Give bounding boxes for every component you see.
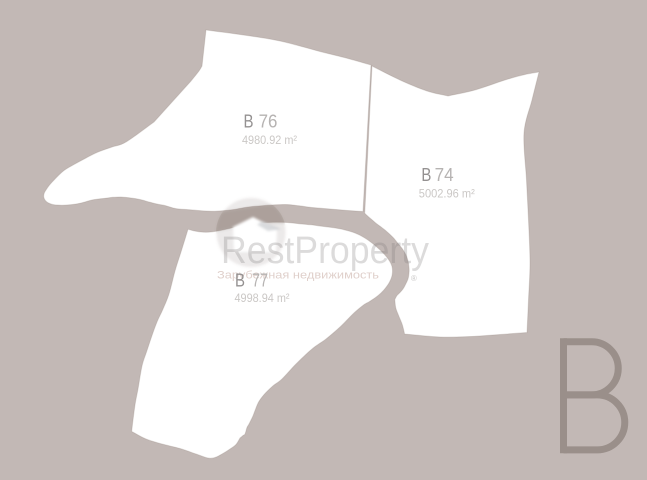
svg-text:B: B bbox=[235, 271, 245, 291]
svg-text:4980.92 m²: 4980.92 m² bbox=[242, 133, 297, 147]
svg-text:5002.96 m²: 5002.96 m² bbox=[419, 187, 475, 201]
svg-text:®: ® bbox=[411, 274, 417, 283]
svg-text:RestProperty: RestProperty bbox=[221, 230, 429, 272]
svg-text:B: B bbox=[244, 112, 254, 132]
svg-text:B: B bbox=[421, 165, 431, 185]
svg-text:76: 76 bbox=[259, 112, 278, 132]
svg-text:74: 74 bbox=[435, 165, 454, 185]
svg-text:4998.94 m²: 4998.94 m² bbox=[235, 291, 290, 305]
svg-text:77: 77 bbox=[252, 271, 268, 291]
